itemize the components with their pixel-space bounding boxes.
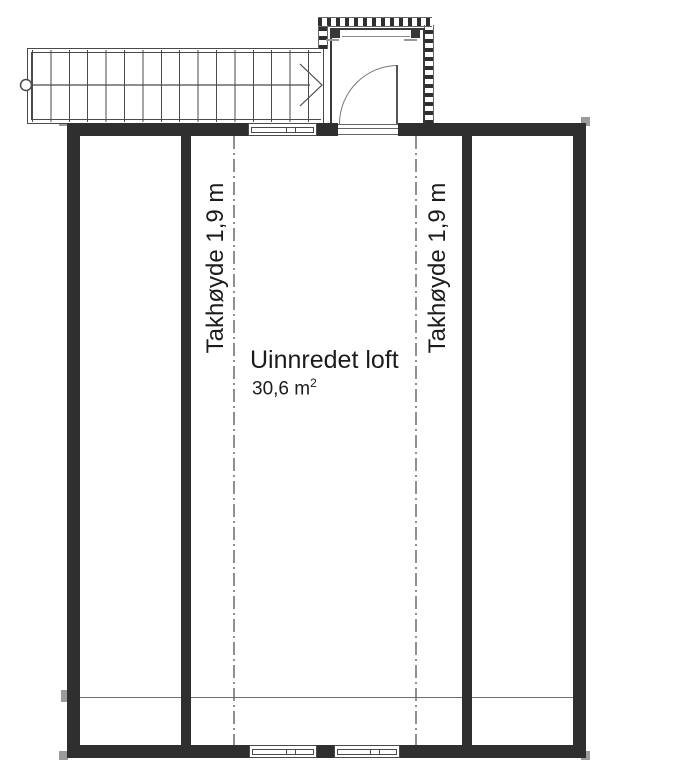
vestibule-jamb-left: [331, 28, 340, 38]
window-bottom-left: [249, 745, 317, 758]
vestibule-wall-tick-right: [404, 39, 417, 41]
door-leaf: [396, 65, 398, 124]
interior-wall-left: [181, 136, 191, 745]
ceiling-height-dashed-line-left: [233, 136, 235, 745]
ceiling-height-label-left: Takhøyde 1,9 m: [202, 168, 230, 368]
exterior-wall-bottom-left-segment: [67, 745, 249, 758]
window-pane-divider: [370, 749, 371, 755]
window-frame: [252, 749, 314, 755]
window-frame: [337, 749, 397, 755]
vestibule-hatch-left: [318, 25, 328, 49]
room-area-value: 30,6 m: [252, 378, 310, 399]
door-threshold: [338, 124, 398, 135]
window-pane-divider: [295, 749, 296, 755]
exterior-wall-bottom-right-segment: [400, 745, 586, 758]
window-pane-divider: [295, 127, 296, 133]
window-pane-divider: [379, 749, 380, 755]
walk-line-start-circle: [21, 80, 32, 91]
window-pane-divider: [286, 127, 287, 133]
stair-walk-line: [16, 48, 328, 122]
vestibule-wall-tick-left: [326, 39, 339, 41]
vestibule-jamb-right: [411, 28, 420, 38]
room-name-label: Uinnredet loft: [250, 347, 399, 375]
floor-edge-line: [80, 697, 573, 698]
interior-wall-right: [462, 136, 472, 745]
ceiling-height-dashed-line-right: [415, 136, 417, 745]
floor-plan: Uinnredet loft 30,6 m2 Takhøyde 1,9 m Ta…: [0, 0, 680, 780]
window-bottom-right: [334, 745, 400, 758]
exterior-wall-bottom-middle-segment: [317, 745, 334, 758]
room-area-label: 30,6 m2: [252, 377, 317, 400]
exterior-wall-left: [67, 123, 80, 758]
room-area-superscript: 2: [310, 376, 317, 390]
window-frame: [251, 127, 314, 133]
ceiling-height-label-right: Takhøyde 1,9 m: [424, 168, 452, 368]
exterior-wall-right: [573, 123, 586, 758]
exterior-wall-top-left-segment: [67, 123, 248, 136]
vestibule-window-line: [342, 36, 410, 37]
window-pane-divider: [286, 749, 287, 755]
window-top: [248, 123, 317, 136]
vestibule-hatch-right: [424, 25, 434, 124]
exterior-wall-top-middle-segment: [317, 123, 338, 136]
exterior-wall-top-right-segment: [398, 123, 586, 136]
vestibule-hatch-top: [318, 17, 432, 27]
